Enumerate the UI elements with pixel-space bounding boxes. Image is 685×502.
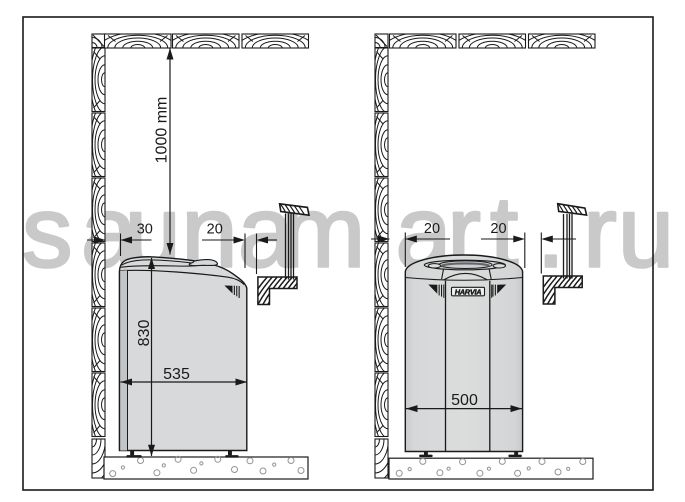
svg-text:830: 830 (136, 320, 153, 347)
svg-text:20: 20 (424, 221, 440, 237)
svg-text:535: 535 (163, 366, 190, 383)
svg-text:20: 20 (490, 221, 506, 237)
svg-text:HARVIA: HARVIA (455, 287, 482, 296)
svg-text:30: 30 (137, 222, 153, 238)
svg-text:1000 mm: 1000 mm (154, 97, 171, 164)
svg-text:20: 20 (207, 222, 223, 238)
svg-text:500: 500 (451, 392, 478, 409)
